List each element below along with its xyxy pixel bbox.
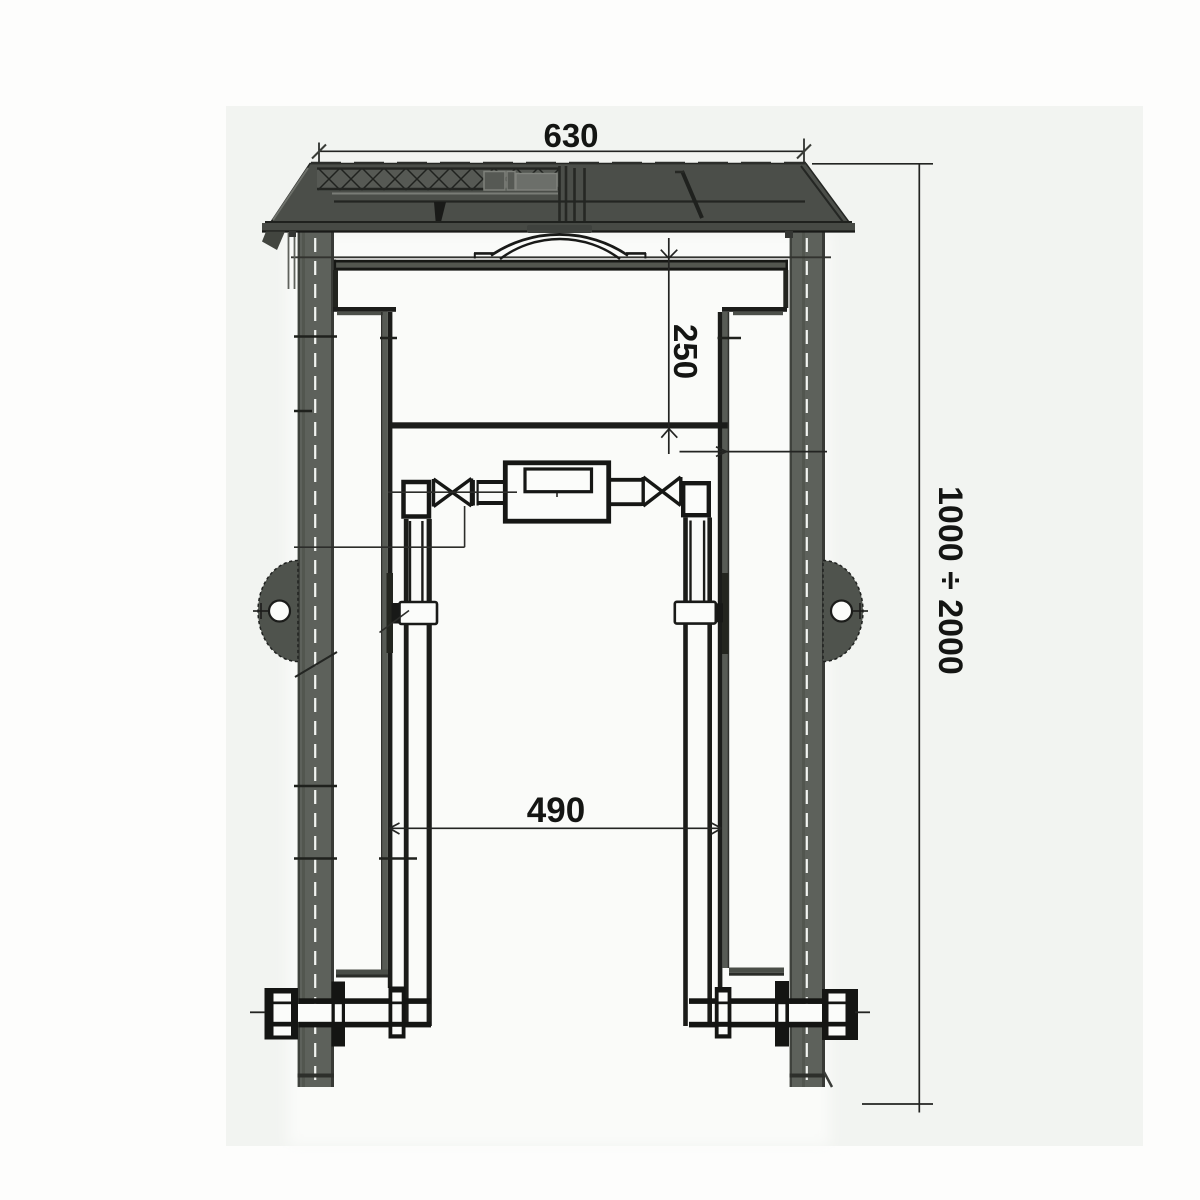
svg-text:1000 ÷ 2000: 1000 ÷ 2000	[931, 486, 969, 675]
svg-text:630: 630	[543, 117, 598, 154]
svg-text:250: 250	[667, 324, 704, 379]
svg-text:490: 490	[527, 791, 585, 830]
